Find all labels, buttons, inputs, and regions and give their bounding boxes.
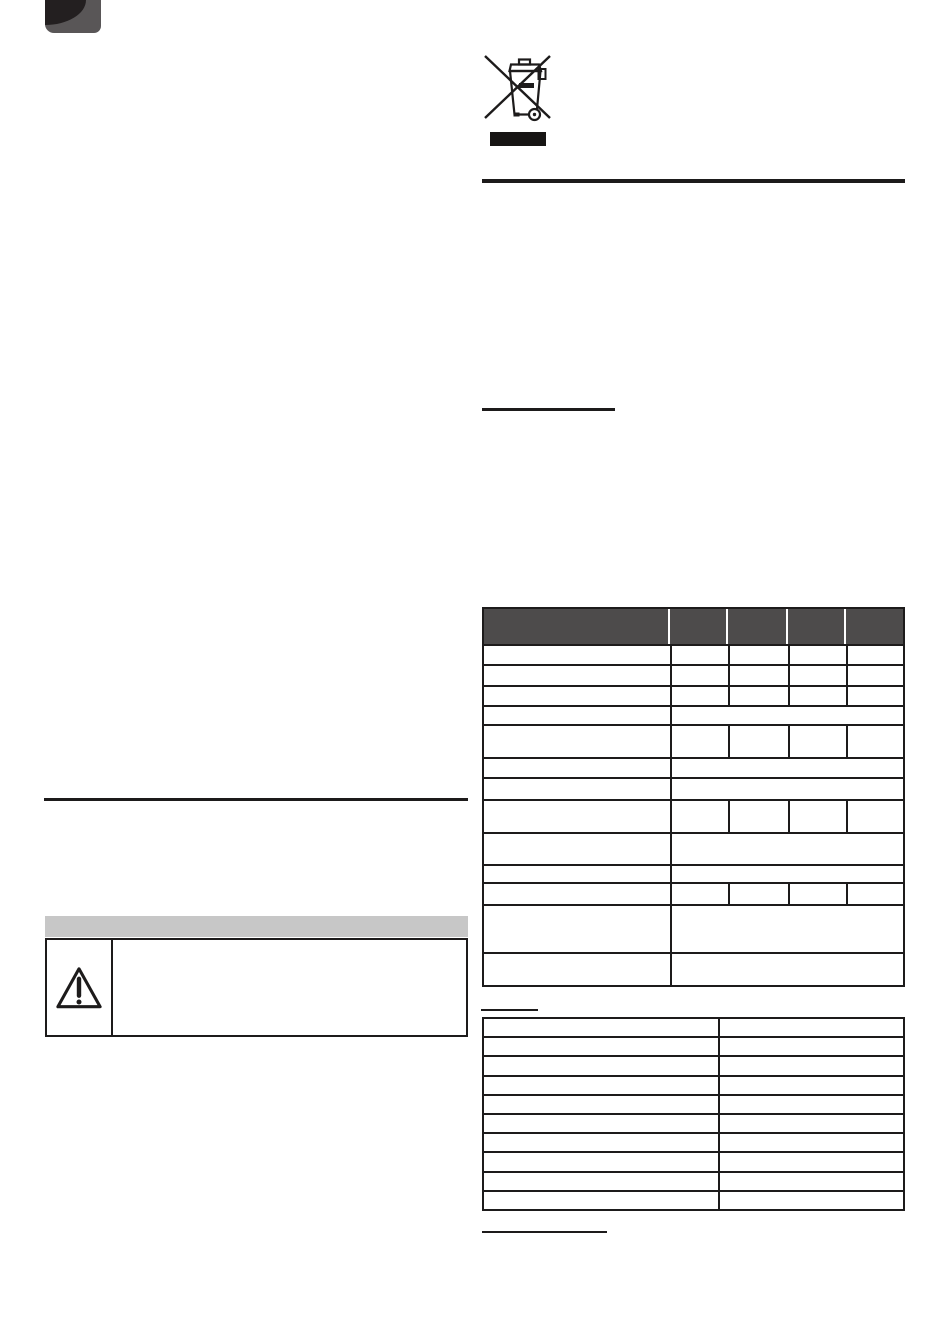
- table-cell: [484, 646, 672, 664]
- spec-table-body: [484, 644, 903, 985]
- underlined-heading: [482, 408, 615, 411]
- table-cell: [846, 884, 903, 904]
- bin-foot: [514, 113, 520, 117]
- table-row: [484, 777, 903, 799]
- table-cell: [484, 1077, 720, 1094]
- table-cell: [720, 1057, 903, 1074]
- table-row: [484, 724, 903, 757]
- table-cell: [672, 884, 728, 904]
- table-header-cell: [786, 609, 844, 644]
- table-cell: [788, 801, 846, 832]
- table-cell: [728, 666, 788, 685]
- table-cell: [484, 779, 672, 799]
- table-cell: [672, 666, 728, 685]
- table-cell: [484, 866, 672, 882]
- table-cell: [484, 1134, 720, 1151]
- section-divider-rule: [44, 798, 468, 801]
- table-cell: [484, 726, 672, 757]
- table-cell: [846, 687, 903, 705]
- table-row: [484, 1171, 903, 1190]
- warning-triangle-icon: [55, 965, 103, 1011]
- table-cell: [484, 1038, 720, 1055]
- underlined-heading: [482, 1231, 607, 1233]
- table-header-cell: [484, 609, 670, 644]
- table-cell: [484, 1019, 720, 1036]
- table-cell: [846, 801, 903, 832]
- table-cell: [672, 801, 728, 832]
- table-cell: [484, 1115, 720, 1132]
- table-cell: [788, 646, 846, 664]
- table-cell: [484, 759, 672, 777]
- table-cell: [720, 1134, 903, 1151]
- table-cell-merged: [672, 906, 903, 952]
- table-row: [484, 1132, 903, 1151]
- table-row: [484, 1075, 903, 1094]
- table-cell: [788, 687, 846, 705]
- table-cell: [720, 1192, 903, 1209]
- weee-symbol: [483, 52, 553, 148]
- table-cell: [846, 646, 903, 664]
- specification-table: [482, 607, 905, 987]
- table-row: [484, 882, 903, 904]
- table-cell: [720, 1077, 903, 1094]
- table-cell: [484, 884, 672, 904]
- info-table: [482, 1017, 905, 1211]
- underlined-heading: [481, 1009, 538, 1011]
- table-row: [484, 1055, 903, 1074]
- table-row: [484, 644, 903, 664]
- table-row: [484, 1113, 903, 1132]
- warning-message: [113, 940, 466, 1035]
- document-page: [0, 0, 950, 1344]
- table-row: [484, 1019, 903, 1036]
- table-cell: [720, 1173, 903, 1190]
- table-cell: [484, 1096, 720, 1113]
- table-row: [484, 757, 903, 777]
- table-header-row: [484, 609, 903, 644]
- table-cell-merged: [672, 834, 903, 864]
- table-cell: [846, 666, 903, 685]
- table-cell: [788, 726, 846, 757]
- section-divider-rule: [482, 179, 905, 183]
- warning-box: [45, 938, 468, 1037]
- table-row: [484, 864, 903, 882]
- table-cell-merged: [672, 707, 903, 724]
- table-row: [484, 685, 903, 705]
- table-cell: [484, 834, 672, 864]
- table-cell-merged: [672, 779, 903, 799]
- table-cell: [728, 646, 788, 664]
- table-cell: [728, 687, 788, 705]
- page-corner-tab: [45, 0, 101, 33]
- table-cell: [484, 687, 672, 705]
- table-cell: [484, 1173, 720, 1190]
- table-row: [484, 1151, 903, 1170]
- table-row: [484, 1190, 903, 1209]
- warning-icon-cell: [47, 940, 113, 1035]
- table-cell: [846, 726, 903, 757]
- weee-black-bar: [490, 132, 546, 146]
- table-cell: [720, 1038, 903, 1055]
- table-header-cell: [726, 609, 786, 644]
- table-cell: [484, 1192, 720, 1209]
- table-cell-merged: [672, 954, 903, 985]
- table-cell: [788, 884, 846, 904]
- table-cell: [672, 726, 728, 757]
- table-row: [484, 1036, 903, 1055]
- table-cell: [672, 646, 728, 664]
- corner-tab-dark-swoosh: [45, 0, 86, 25]
- table-row: [484, 664, 903, 685]
- table-cell: [484, 801, 672, 832]
- table-cell: [484, 1057, 720, 1074]
- table-cell: [720, 1115, 903, 1132]
- table-cell: [720, 1019, 903, 1036]
- table-cell: [672, 687, 728, 705]
- table-row: [484, 904, 903, 952]
- table-row: [484, 799, 903, 832]
- table-cell: [484, 666, 672, 685]
- table-cell: [728, 801, 788, 832]
- table-row: [484, 832, 903, 864]
- weee-crossed-out-wheelie-bin-icon: [483, 52, 553, 124]
- table-cell: [484, 954, 672, 985]
- table-cell: [484, 707, 672, 724]
- table-header-cell: [670, 609, 726, 644]
- table-header-cell: [844, 609, 903, 644]
- table-cell: [484, 1153, 720, 1170]
- table-cell: [484, 906, 672, 952]
- table-cell: [788, 666, 846, 685]
- table-cell: [728, 726, 788, 757]
- table-cell: [728, 884, 788, 904]
- table-cell: [720, 1153, 903, 1170]
- table-cell-merged: [672, 866, 903, 882]
- table-row: [484, 705, 903, 724]
- table-cell: [720, 1096, 903, 1113]
- table-cell-merged: [672, 759, 903, 777]
- warning-header-bar: [45, 916, 468, 937]
- table-row: [484, 1094, 903, 1113]
- table-row: [484, 952, 903, 985]
